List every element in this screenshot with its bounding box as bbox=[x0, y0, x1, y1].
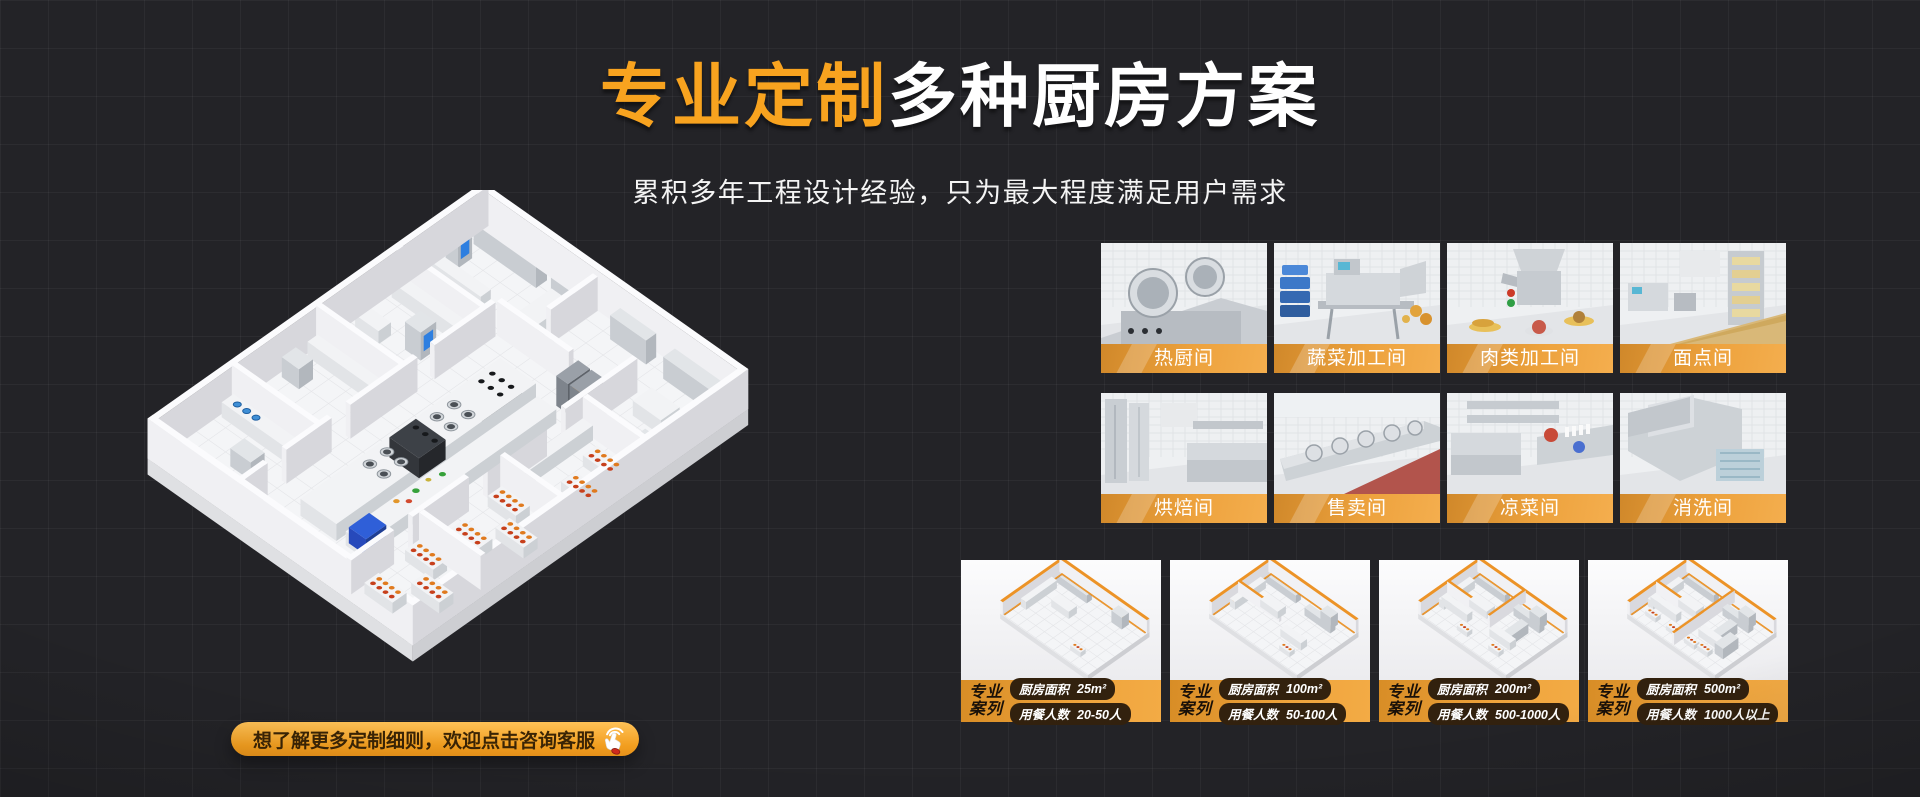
kitchen-floorplan-illustration bbox=[138, 190, 838, 730]
case-badge: 专业案列 bbox=[1387, 684, 1421, 719]
page-title: 专业定制多种厨房方案 bbox=[0, 40, 1920, 140]
room-card-serving: 售卖间 bbox=[1274, 393, 1440, 523]
case-card-200m2: 专业案列 厨房面积200m² 用餐人数500-1000人 bbox=[1379, 560, 1579, 722]
room-photo bbox=[1620, 243, 1786, 344]
cta-label: 想了解更多定制细则，欢迎点击咨询客服 bbox=[253, 726, 595, 753]
room-card-hot-kitchen: 热厨间 bbox=[1101, 243, 1267, 373]
room-card-vegetable: 蔬菜加工间 bbox=[1274, 243, 1440, 373]
room-card-baking: 烘焙间 bbox=[1101, 393, 1267, 523]
room-card-cold-dish: 凉菜间 bbox=[1447, 393, 1613, 523]
title-rest: 多种厨房方案 bbox=[888, 58, 1320, 135]
kitchen-area-pill: 厨房面积500m² bbox=[1637, 678, 1749, 700]
contact-service-button[interactable]: 想了解更多定制细则，欢迎点击咨询客服 bbox=[231, 722, 639, 756]
room-card-dishwashing: 消洗间 bbox=[1620, 393, 1786, 523]
case-list: 专业案列 厨房面积25m² 用餐人数20-50人 专业案列 厨房面积100m² … bbox=[961, 560, 1788, 722]
room-photo bbox=[1620, 393, 1786, 494]
case-footer: 专业案列 厨房面积25m² 用餐人数20-50人 bbox=[961, 680, 1161, 722]
room-card-pastry: 面点间 bbox=[1620, 243, 1786, 373]
title-highlight: 专业定制 bbox=[600, 58, 888, 135]
case-card-100m2: 专业案列 厨房面积100m² 用餐人数50-100人 bbox=[1170, 560, 1370, 722]
case-card-25m2: 专业案列 厨房面积25m² 用餐人数20-50人 bbox=[961, 560, 1161, 722]
promo-banner: 专业定制多种厨房方案 累积多年工程设计经验，只为最大程度满足用户需求 热厨间 蔬… bbox=[0, 0, 1920, 797]
room-label: 热厨间 bbox=[1101, 344, 1267, 373]
case-card-500m2: 专业案列 厨房面积500m² 用餐人数1000人以上 bbox=[1588, 560, 1788, 722]
diners-pill: 用餐人数500-1000人 bbox=[1428, 703, 1569, 725]
room-photo bbox=[1447, 393, 1613, 494]
room-photo bbox=[1101, 393, 1267, 494]
room-photo bbox=[1101, 243, 1267, 344]
room-gallery: 热厨间 蔬菜加工间 肉类加工间 面点间 烘焙间 售卖间 凉菜间 消洗间 bbox=[1101, 243, 1786, 523]
room-card-meat: 肉类加工间 bbox=[1447, 243, 1613, 373]
case-footer: 专业案列 厨房面积200m² 用餐人数500-1000人 bbox=[1379, 680, 1579, 722]
room-photo bbox=[1274, 243, 1440, 344]
case-footer: 专业案列 厨房面积500m² 用餐人数1000人以上 bbox=[1588, 680, 1788, 722]
room-photo bbox=[1274, 393, 1440, 494]
room-label: 面点间 bbox=[1620, 344, 1786, 373]
room-label: 售卖间 bbox=[1274, 494, 1440, 523]
case-footer: 专业案列 厨房面积100m² 用餐人数50-100人 bbox=[1170, 680, 1370, 722]
case-illustration bbox=[961, 560, 1161, 680]
room-label: 肉类加工间 bbox=[1447, 344, 1613, 373]
kitchen-area-pill: 厨房面积25m² bbox=[1010, 678, 1115, 700]
room-label: 烘焙间 bbox=[1101, 494, 1267, 523]
case-illustration bbox=[1588, 560, 1788, 680]
room-photo bbox=[1447, 243, 1613, 344]
case-illustration bbox=[1379, 560, 1579, 680]
diners-pill: 用餐人数50-100人 bbox=[1219, 703, 1346, 725]
case-badge: 专业案列 bbox=[1596, 684, 1630, 719]
room-label: 凉菜间 bbox=[1447, 494, 1613, 523]
diners-pill: 用餐人数20-50人 bbox=[1010, 703, 1131, 725]
room-label: 消洗间 bbox=[1620, 494, 1786, 523]
diners-pill: 用餐人数1000人以上 bbox=[1637, 703, 1778, 725]
room-label: 蔬菜加工间 bbox=[1274, 344, 1440, 373]
case-badge: 专业案列 bbox=[969, 684, 1003, 719]
case-illustration bbox=[1170, 560, 1370, 680]
click-hand-icon bbox=[599, 725, 631, 763]
case-badge: 专业案列 bbox=[1178, 684, 1212, 719]
kitchen-area-pill: 厨房面积200m² bbox=[1428, 678, 1540, 700]
kitchen-area-pill: 厨房面积100m² bbox=[1219, 678, 1331, 700]
